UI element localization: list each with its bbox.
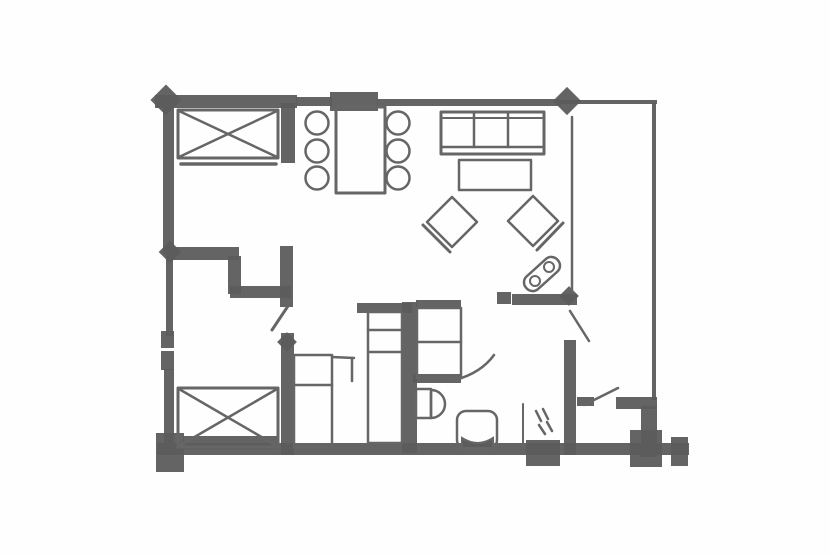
bottom-left-post — [156, 433, 184, 472]
armchair-left — [427, 197, 477, 247]
right-wall — [652, 103, 656, 400]
capsule-knob-1 — [530, 276, 540, 286]
dining-table — [336, 107, 385, 193]
bed-nook-stub — [281, 103, 295, 163]
bedroom-door-leaf — [272, 306, 288, 330]
dining-chair-2 — [306, 140, 329, 163]
capsule-knob-2 — [544, 262, 554, 272]
closet1-bedroom — [294, 355, 332, 447]
top-wall-mid — [296, 97, 332, 106]
floorplan-canvas — [0, 0, 830, 555]
bottom-post-shower — [526, 440, 560, 466]
ottoman-capsule — [521, 254, 564, 295]
armchair-left-back — [423, 225, 450, 252]
entry-wall-vertical — [641, 406, 657, 457]
dining-chair-4 — [387, 112, 410, 135]
toilet-tank — [416, 389, 431, 418]
basin-base-band — [462, 438, 493, 448]
bedroom-door-stub — [280, 246, 293, 307]
dining-chair-6 — [387, 167, 410, 190]
dining-chair-5 — [387, 140, 410, 163]
bottom-stub-right — [671, 437, 688, 466]
dining-chair-1 — [306, 112, 329, 135]
armchair-right — [508, 196, 558, 246]
shower-dash-3 — [539, 425, 545, 434]
left-wall-mid — [166, 254, 173, 336]
corridor-door-leaf — [570, 311, 589, 341]
dining-chair-3 — [306, 167, 329, 190]
closet2-kitchen — [368, 312, 402, 443]
shower-dash-4 — [547, 422, 552, 431]
left-wall-upper — [163, 96, 174, 254]
floorplan-svg — [0, 0, 830, 555]
left-window-upper — [161, 331, 174, 348]
corridor-wall-lower — [564, 340, 576, 455]
bath-wall-cap — [497, 292, 511, 304]
shower-dash-1 — [536, 411, 541, 421]
shower-dash-2 — [543, 409, 548, 419]
post-top-right-mid — [553, 87, 581, 115]
top-wall-right-mid — [377, 99, 561, 106]
closet-ext-top — [332, 357, 354, 358]
coffee-table — [459, 160, 531, 190]
toilet-bowl — [431, 390, 445, 418]
left-window-lower — [161, 351, 174, 370]
entry-door-leaf — [584, 388, 618, 405]
